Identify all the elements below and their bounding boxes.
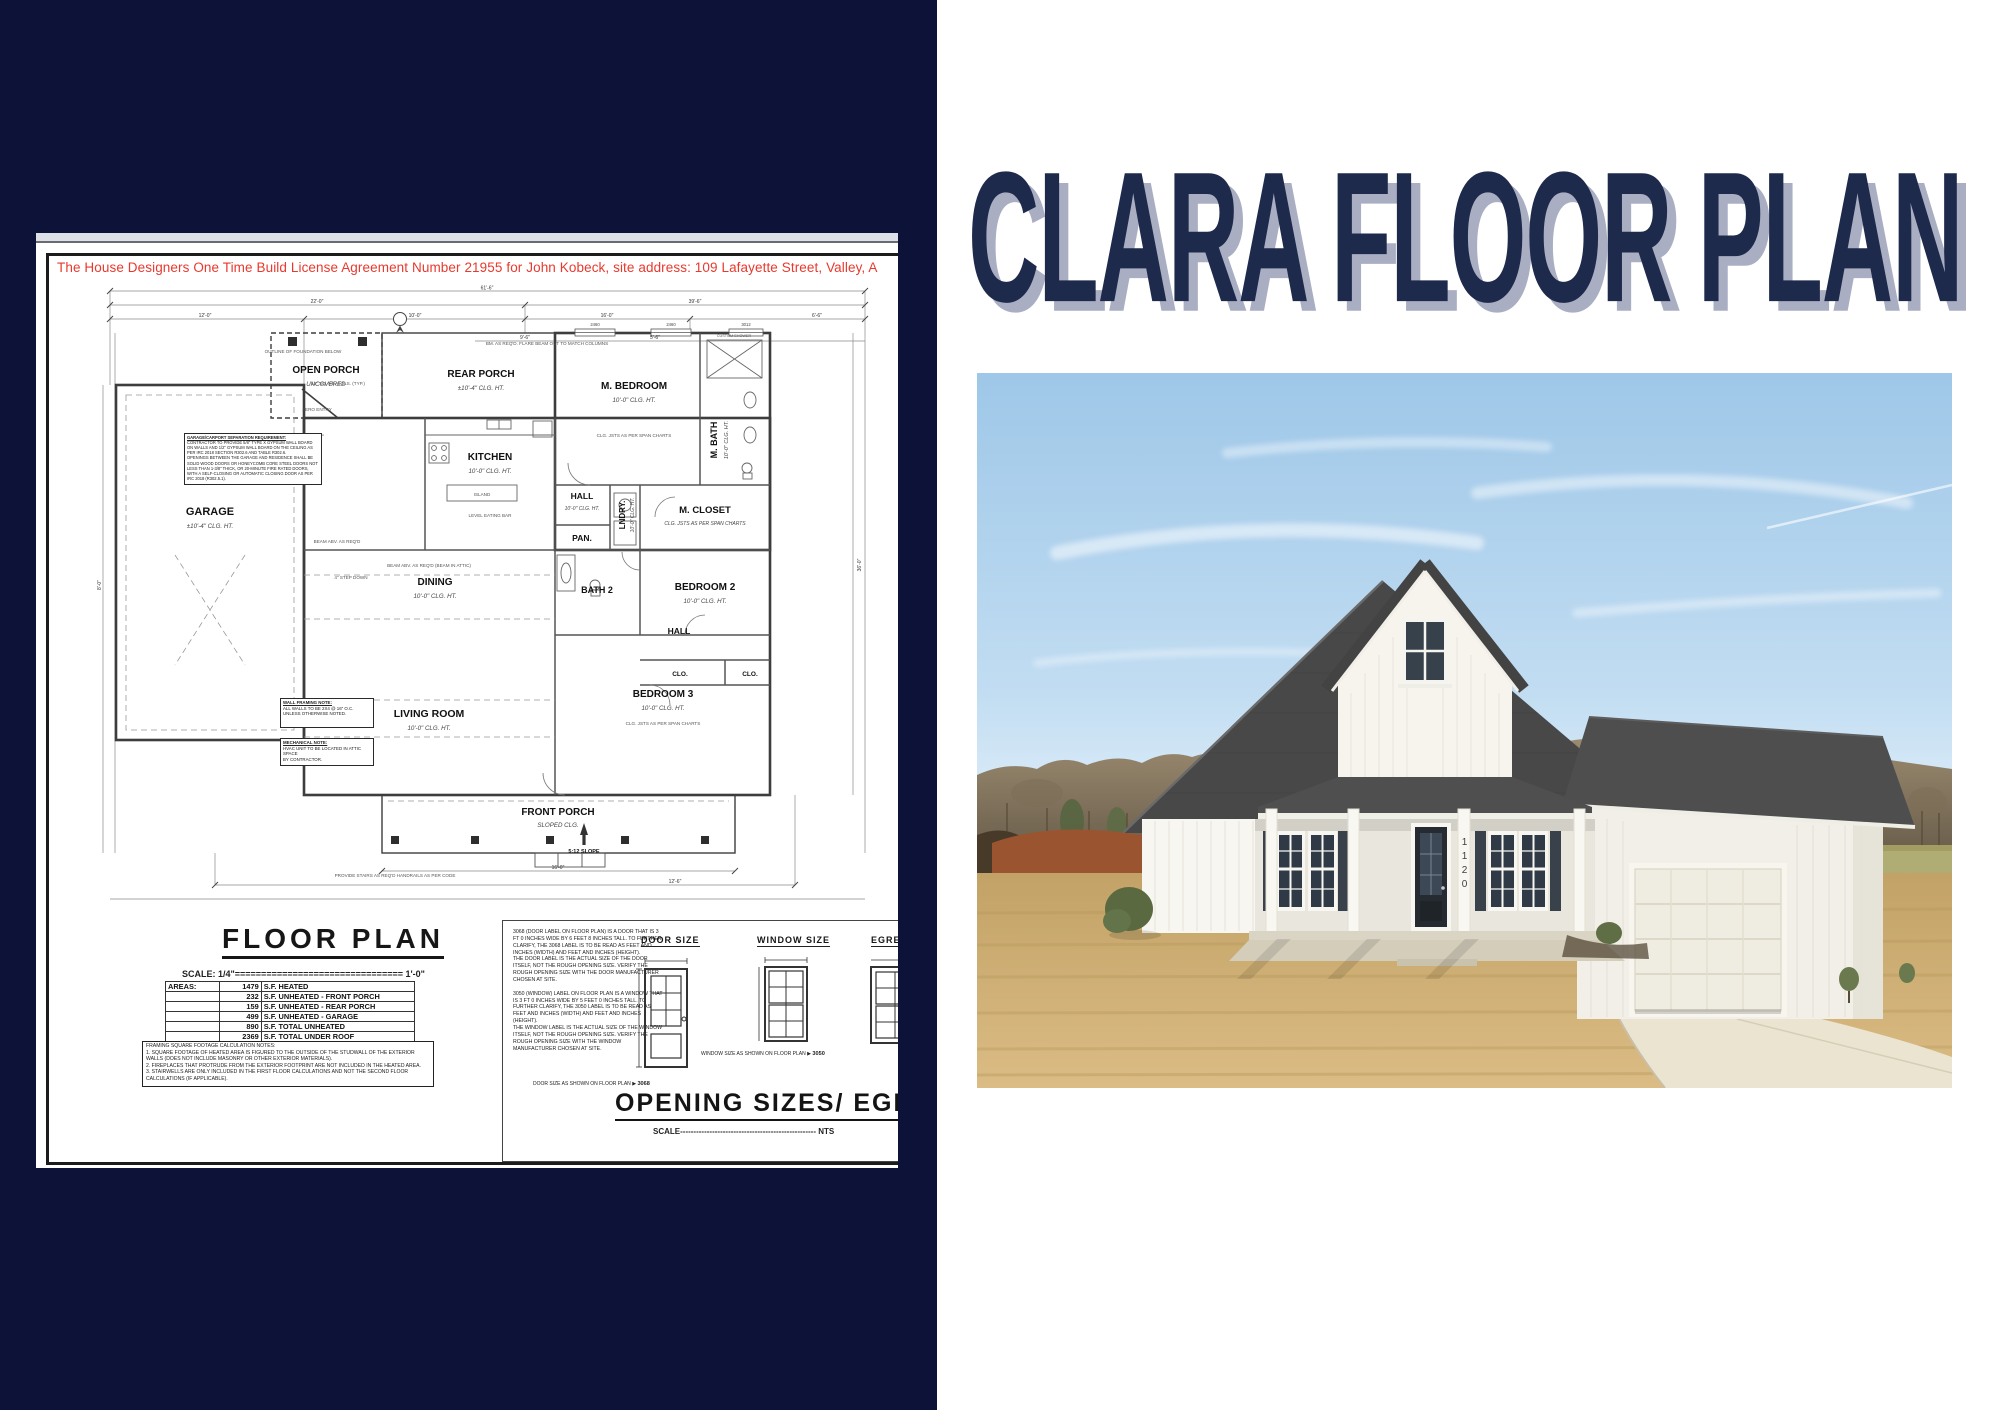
egress-heading: EGRESS xyxy=(871,935,898,947)
door-size-heading: DOOR SIZE xyxy=(641,935,700,947)
room-sub: 10'-0" CLG. HT. xyxy=(683,598,726,605)
arrow-icon: ▶ xyxy=(807,1051,811,1057)
annotation: BEAM ABV. AS REQ'D xyxy=(314,539,361,544)
room-label: BEDROOM 2 xyxy=(675,582,736,593)
dimension-label: 5'-6" xyxy=(650,335,660,341)
table-row: 890 S.F. TOTAL UNHEATED xyxy=(166,1022,415,1032)
room-label: M. BEDROOM xyxy=(601,381,667,392)
note-body: ALL WALLS TO BE 2X4 @ 16" O.C. UNLESS OT… xyxy=(283,706,371,717)
room-sub: 10'-0" CLG. HT. xyxy=(468,468,511,475)
floor-plan-scale: SCALE: 1/4"=============================… xyxy=(182,969,425,979)
floor-plan-title: FLOOR PLAN xyxy=(222,923,444,959)
front-door xyxy=(1411,823,1451,931)
room-sub: 10'-0" CLG. HT. xyxy=(641,705,684,712)
egress-diagram xyxy=(863,955,898,1055)
door-caption: DOOR SIZE AS SHOWN ON FLOOR PLAN xyxy=(533,1081,631,1087)
room-label: DINING xyxy=(418,577,453,588)
dimension-label: 16'-0" xyxy=(552,865,565,871)
room-sub: CLG. JSTS AS PER SPAN CHARTS xyxy=(664,521,746,527)
annotation: PROVIDE STAIRS AS REQ'D HANDRAILS AS PER… xyxy=(335,873,456,878)
dimension-label: 16'-0" xyxy=(601,313,614,319)
garage-separation-note: GARAGE/CARPORT SEPARATION REQUIREMENT: C… xyxy=(184,433,322,485)
garage-wall-shade xyxy=(1853,801,1883,1019)
room-label: CLO. xyxy=(742,671,758,678)
area-desc: S.F. UNHEATED - REAR PORCH xyxy=(261,1002,414,1012)
porch-slab xyxy=(1249,931,1601,940)
room-label: BATH 2 xyxy=(581,585,613,595)
area-desc: S.F. UNHEATED - GARAGE xyxy=(261,1012,414,1022)
dimension-label: 8'-0" xyxy=(97,580,103,590)
room-sub: ±10'-4" CLG. HT. xyxy=(187,523,234,530)
arrow-icon: ▶ xyxy=(632,1081,636,1087)
dimension-label: 36'-0" xyxy=(857,558,863,571)
room-label: LNDRY. xyxy=(618,501,627,530)
porch-fascia xyxy=(1258,813,1592,820)
room-label: KITCHEN xyxy=(468,452,512,463)
dimension-lines xyxy=(103,291,865,899)
window-tag: 3050 xyxy=(812,1051,824,1057)
room-sub: 10'-0" CLG. HT. xyxy=(407,725,450,732)
room-label: M. CLOSET xyxy=(679,505,731,516)
room-sub: 10'-0" CLG. HT. xyxy=(565,506,600,512)
dimension-label: 61'-6" xyxy=(481,286,494,292)
porch-columns xyxy=(288,337,709,844)
window-tag: 3012 xyxy=(741,322,751,327)
room-sub: 10'-0" CLG. HT. xyxy=(724,421,730,459)
note-body: CONTRACTOR TO PROVIDE 5/8" TYPE X GYPSUM… xyxy=(187,440,319,481)
sheet-top-edge xyxy=(36,233,898,243)
area-value: 159 xyxy=(219,1002,261,1012)
room-label: CLO. xyxy=(672,671,688,678)
room-label: LIVING ROOM xyxy=(394,708,465,720)
annotation: OUTLINE OF FOUNDATION BELOW xyxy=(265,349,342,354)
room-sub: SLOPED CLG. xyxy=(537,822,578,829)
annotation: CUSTOM SHOWER xyxy=(717,334,752,338)
window-caption-row: WINDOW SIZE AS SHOWN ON FLOOR PLAN ▶ 305… xyxy=(701,1051,825,1057)
room-sub: 10'-0" CLG. HT. xyxy=(630,498,636,533)
room-label: OPEN PORCH xyxy=(292,365,359,376)
annotation: ZERO ENTRY xyxy=(302,407,332,412)
annotation: LEVEL EATING BAR xyxy=(469,513,513,518)
framing-notes: FRAMING SQUARE FOOTAGE CALCULATION NOTES… xyxy=(142,1041,434,1087)
annotation: CLG. JSTS AS PER SPAN CHARTS xyxy=(626,721,701,726)
room-label: M. BATH xyxy=(709,422,719,459)
area-value: 890 xyxy=(219,1022,261,1032)
window-diagram xyxy=(755,955,813,1051)
room-label: HALL xyxy=(668,626,691,636)
annotation: BEAM ABV. AS REQ'D (BEAM IN ATTIC) xyxy=(387,563,471,568)
room-label: BEDROOM 3 xyxy=(633,689,694,700)
areas-table: AREAS: 1479 S.F. HEATED 232 S.F. UNHEATE… xyxy=(165,981,415,1042)
area-value: 232 xyxy=(219,992,261,1002)
table-row: 232 S.F. UNHEATED - FRONT PORCH xyxy=(166,992,415,1002)
table-row: 2369 S.F. TOTAL UNDER ROOF xyxy=(166,1032,415,1042)
dimension-label: 10'-0" xyxy=(409,313,422,319)
key-balloon xyxy=(394,313,407,334)
annotation: 4" STEP DOWN xyxy=(334,575,367,580)
area-value: 1479 xyxy=(219,982,261,992)
house-photo-art xyxy=(977,373,1952,1088)
opening-sizes-scale: SCALE-----------------------------------… xyxy=(653,1127,834,1136)
license-agreement-text: The House Designers One Time Build Licen… xyxy=(57,260,878,275)
area-desc: S.F. HEATED xyxy=(261,982,414,992)
slope-arrow-icon xyxy=(580,823,588,845)
mechanical-note: MECHANICAL NOTE: HVAC UNIT TO BE LOCATED… xyxy=(280,738,374,766)
wall-framing-note: WALL FRAMING NOTE: ALL WALLS TO BE 2X4 @… xyxy=(280,698,374,728)
note-body: HVAC UNIT TO BE LOCATED IN ATTIC SPACE B… xyxy=(283,746,371,763)
annotation: ISLAND xyxy=(474,492,491,497)
room-label: REAR PORCH xyxy=(447,369,514,380)
annotation: 12" SQ. HB. COLS. (TYP.) xyxy=(311,381,365,386)
annotation: CLG. JSTS AS PER SPAN CHARTS xyxy=(597,433,672,438)
flyer-canvas: The House Designers One Time Build Licen… xyxy=(0,0,2000,1410)
room-label: GARAGE xyxy=(186,506,234,518)
page-title: CLARA FLOOR PLAN xyxy=(968,138,1962,339)
door-caption-row: DOOR SIZE AS SHOWN ON FLOOR PLAN ▶ 3068 xyxy=(533,1081,650,1087)
annotation-group: OUTLINE OF FOUNDATION BELOW BM. AS REQ'D… xyxy=(265,334,752,878)
area-desc: S.F. TOTAL UNDER ROOF xyxy=(261,1032,414,1042)
area-desc: S.F. UNHEATED - FRONT PORCH xyxy=(261,992,414,1002)
room-sub: 10'-0" CLG. HT. xyxy=(413,593,456,600)
left-wall xyxy=(1142,819,1260,933)
garage-door-shadow xyxy=(1635,1009,1781,1014)
opening-sizes-box: 3068 (DOOR LABEL ON FLOOR PLAN) IS A DOO… xyxy=(502,920,898,1162)
dimension-label: 22'-0" xyxy=(311,299,324,305)
table-row: 159 S.F. UNHEATED - REAR PORCH xyxy=(166,1002,415,1012)
front-steps xyxy=(535,853,605,867)
house-number: 1120 xyxy=(1459,837,1470,893)
door-tag: 3068 xyxy=(637,1081,649,1087)
window-size-heading: WINDOW SIZE xyxy=(757,935,830,947)
area-value: 499 xyxy=(219,1012,261,1022)
dimension-label: 12'-0" xyxy=(199,313,212,319)
floor-plan-drawing: 61'-6" 22'-0" 39'-6" 12'-0" 10'-0" 16'-0… xyxy=(95,285,890,920)
area-value: 2369 xyxy=(219,1032,261,1042)
room-sub: ±10'-4" CLG. HT. xyxy=(458,385,505,392)
room-sub: 10'-0" CLG. HT. xyxy=(612,397,655,404)
window-tag: 2460 xyxy=(590,322,600,327)
table-row: AREAS: 1479 S.F. HEATED xyxy=(166,982,415,992)
room-label: 5:12 SLOPE xyxy=(568,849,600,855)
dimension-label: 6'-6" xyxy=(812,313,822,319)
door-diagram xyxy=(635,955,697,1077)
opening-sizes-title: OPENING SIZES/ EGRESS xyxy=(615,1089,898,1121)
floor-plan-document: The House Designers One Time Build Licen… xyxy=(36,233,898,1168)
room-label: PAN. xyxy=(572,533,592,543)
window-tag-group: 2460 2460 3012 xyxy=(590,322,751,327)
window-caption: WINDOW SIZE AS SHOWN ON FLOOR PLAN xyxy=(701,1051,806,1057)
dimension-label: 39'-6" xyxy=(689,299,702,305)
room-label: FRONT PORCH xyxy=(521,807,594,818)
house-photo: 1120 xyxy=(977,373,1952,1088)
areas-label: AREAS: xyxy=(166,982,220,992)
dimension-label: 12'-6" xyxy=(669,879,682,885)
room-label: HALL xyxy=(571,491,594,501)
annotation: BM. AS REQ'D. FLARE BEAM OUT TO MATCH CO… xyxy=(486,341,608,346)
window-tag: 2460 xyxy=(666,322,676,327)
table-row: 499 S.F. UNHEATED - GARAGE xyxy=(166,1012,415,1022)
porch-step xyxy=(1397,959,1477,966)
area-desc: S.F. TOTAL UNHEATED xyxy=(261,1022,414,1032)
right-white-panel: CLARA FLOOR PLAN xyxy=(937,0,2000,1410)
